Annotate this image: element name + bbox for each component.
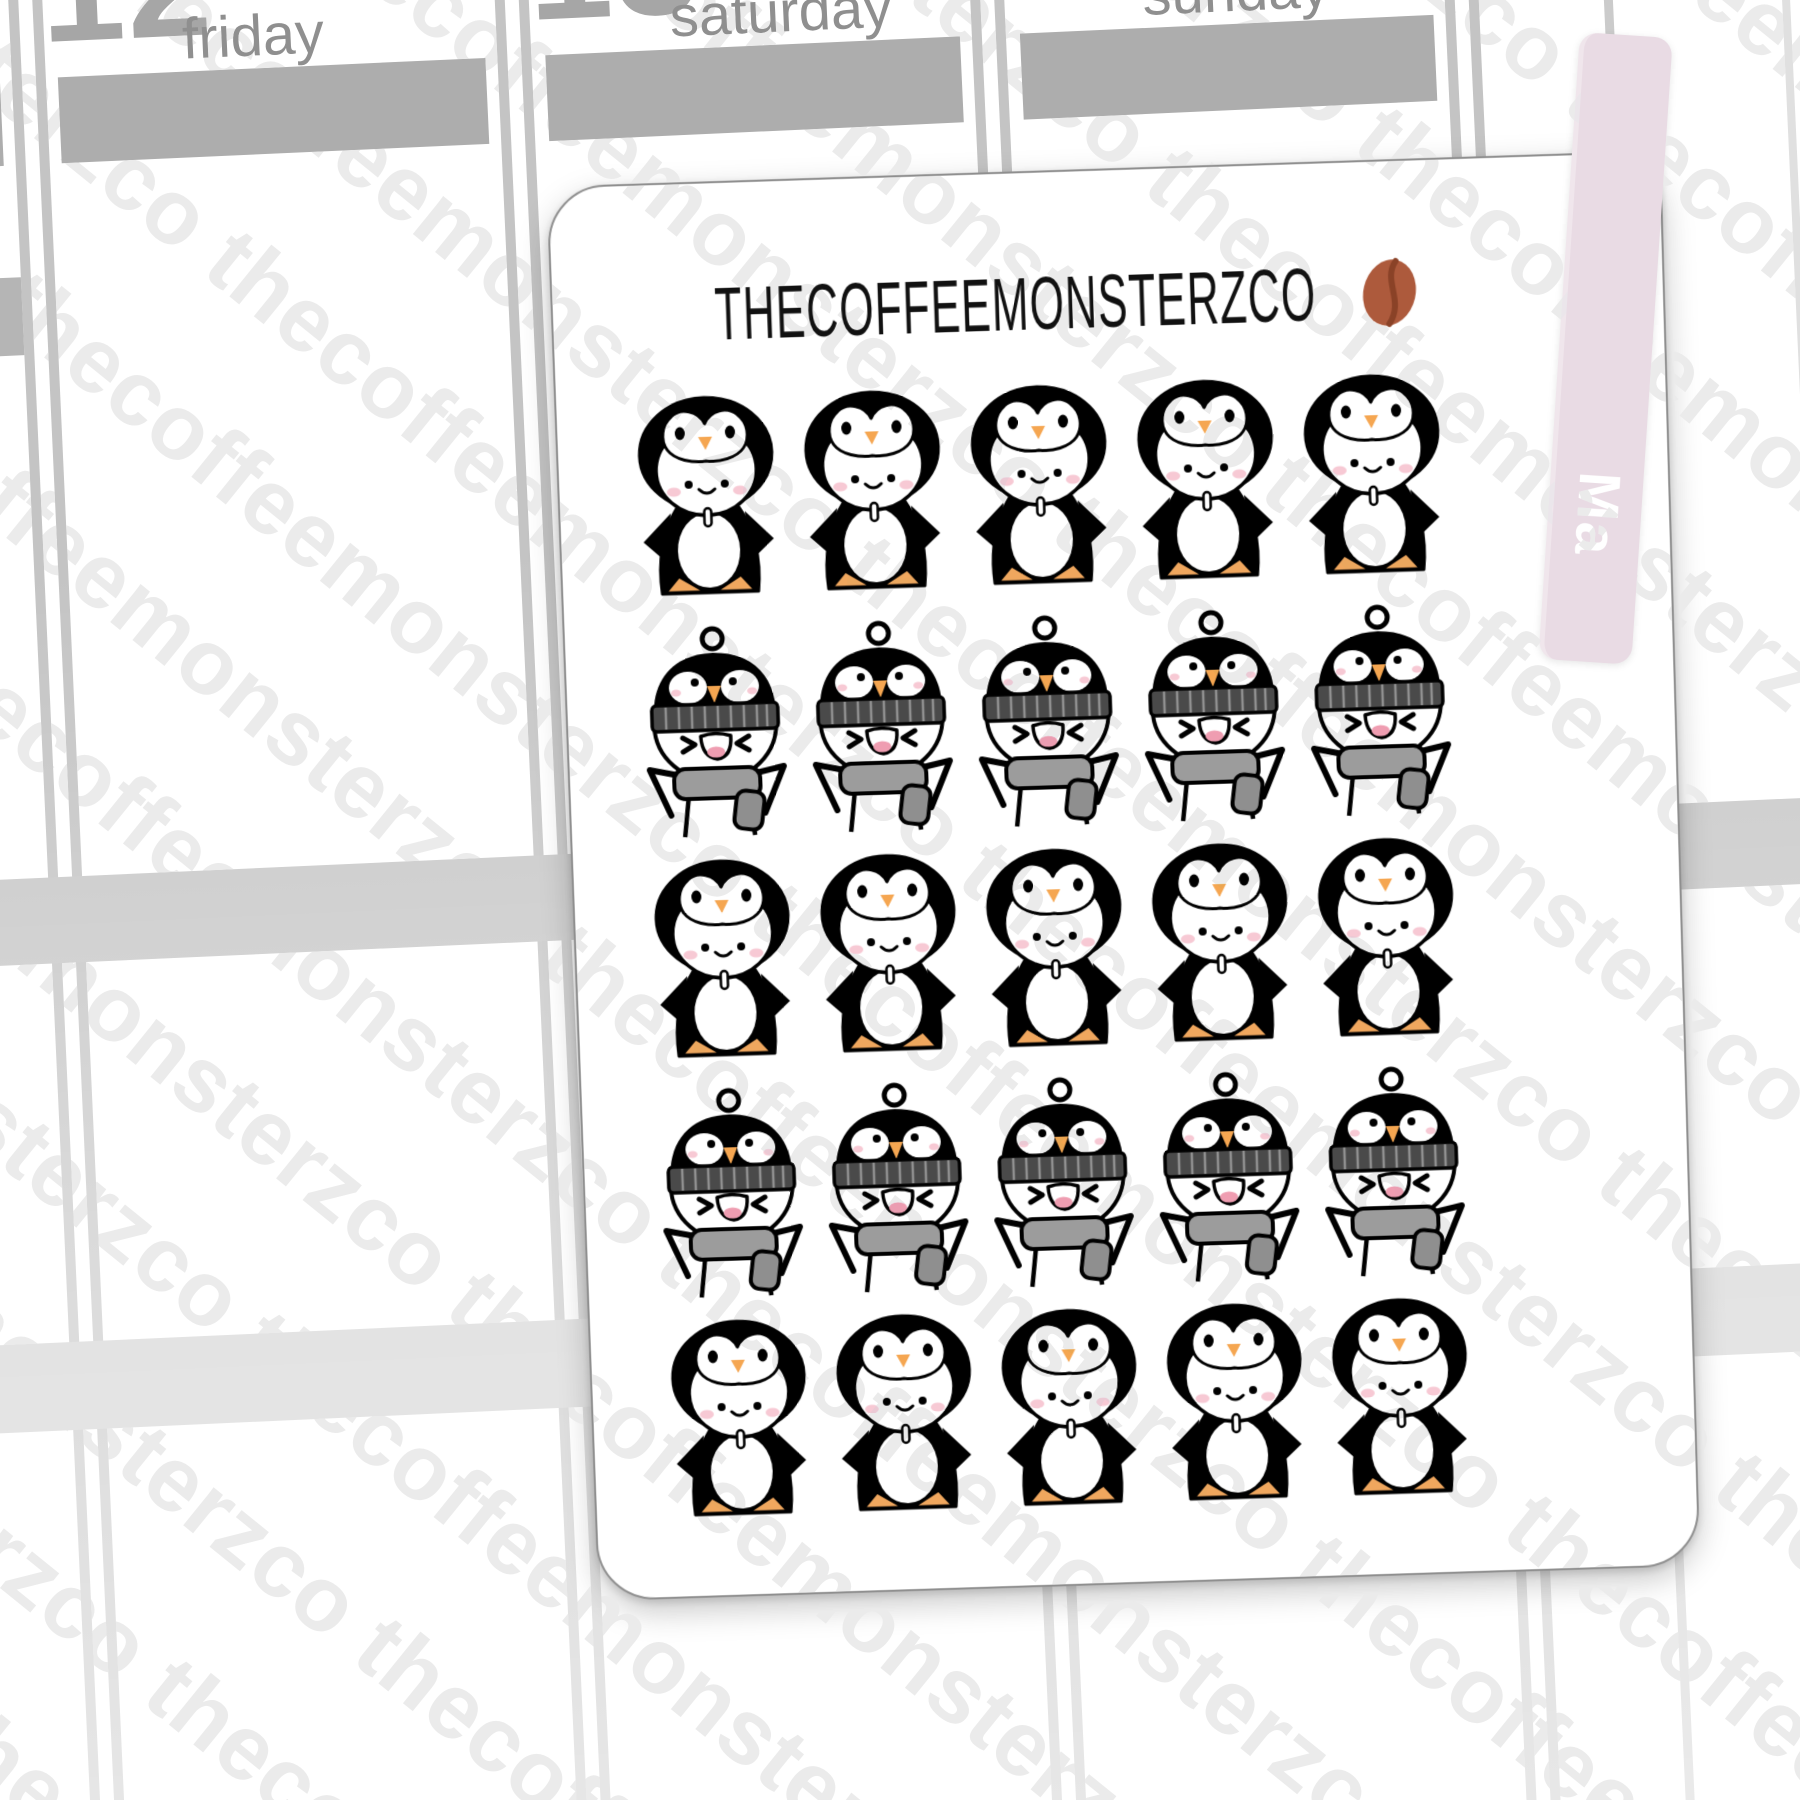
day-header-bar [58, 58, 489, 163]
grid-line [2, 0, 116, 1800]
day-number: 12 [36, 0, 216, 66]
penguin-hood-emoti-art [821, 1307, 990, 1526]
grid-line [26, 0, 140, 1800]
day-header-bar [1020, 15, 1437, 120]
penguin-hood-emoti-art [789, 383, 959, 605]
penguin-beanie-sticker [976, 1064, 1149, 1299]
penguin-hood-sticker [969, 834, 1142, 1070]
penguin-hood-emoti-art [1303, 831, 1471, 1052]
penguin-hood-sticker [1286, 359, 1459, 597]
penguin-beanie-emoti-art [813, 1077, 982, 1297]
penguin-beanie-emoti-art [1129, 604, 1298, 826]
penguin-beanie-sticker [795, 608, 969, 845]
sticker-sheet: THECOFFEEMONSTERZCO [546, 150, 1700, 1601]
penguin-hood-emoti-art [1288, 367, 1457, 590]
penguin-hood-sticker [984, 1294, 1157, 1528]
penguin-hood-sticker [637, 844, 811, 1080]
penguin-hood-emoti-art [971, 841, 1140, 1062]
brand-logo-text: THECOFFEEMONSTERZCO [713, 252, 1317, 357]
day-name: saturday [668, 0, 893, 51]
penguin-beanie-sticker [961, 602, 1135, 839]
penguin-hood-emoti-art [656, 1312, 825, 1531]
penguin-hood-emoti-art [639, 852, 808, 1073]
penguin-hood-emoti-art [1152, 1296, 1320, 1515]
day-header: 12 friday [37, 0, 487, 168]
penguin-beanie-emoti-art [797, 615, 967, 837]
side-cell-shading [0, 277, 24, 360]
month-tab-label: Ma [1561, 470, 1633, 559]
penguin-beanie-sticker [1142, 1059, 1315, 1294]
coffee-bean-icon [1359, 255, 1419, 330]
day-header: 14 sunday [997, 0, 1447, 124]
sheet-content: THECOFFEEMONSTERZCO [607, 158, 1531, 1539]
day-header: 13 saturday [525, 0, 975, 146]
penguin-beanie-sticker [811, 1070, 984, 1305]
penguin-hood-emoti-art [1317, 1291, 1485, 1510]
penguin-hood-emoti-art [805, 847, 974, 1068]
penguin-hood-sticker [653, 1305, 826, 1539]
penguin-beanie-sticker [1308, 1054, 1480, 1289]
penguin-hood-emoti-art [622, 388, 792, 610]
penguin-hood-sticker [1300, 823, 1473, 1059]
penguin-hood-sticker [819, 1299, 992, 1533]
penguin-beanie-emoti-art [647, 1083, 816, 1303]
penguin-beanie-sticker [1127, 597, 1300, 834]
product-photo: 12 friday 13 saturday 14 sunday THECOFFE… [0, 0, 1800, 1800]
penguin-hood-sticker [1315, 1283, 1487, 1517]
penguin-beanie-sticker [645, 1075, 819, 1310]
day-header-bar [545, 36, 963, 141]
penguin-beanie-emoti-art [963, 610, 1132, 832]
penguin-beanie-sticker [628, 613, 802, 850]
penguin-hood-sticker [786, 375, 960, 613]
penguin-beanie-emoti-art [979, 1072, 1148, 1292]
penguin-beanie-sticker [1293, 592, 1466, 829]
penguin-hood-emoti-art [1122, 372, 1291, 594]
penguin-beanie-emoti-art [631, 621, 801, 843]
brand-header: THECOFFEEMONSTERZCO [610, 247, 1496, 360]
penguin-hood-sticker [1120, 365, 1294, 603]
page-edge-line-faint [1772, 0, 1800, 1800]
penguin-beanie-emoti-art [1296, 599, 1465, 821]
day-number: 14 [996, 0, 1176, 22]
penguin-hood-emoti-art [1137, 836, 1306, 1057]
penguin-hood-emoti-art [955, 378, 1125, 600]
day-name: sunday [1141, 0, 1331, 29]
penguin-hood-sticker [1135, 828, 1308, 1064]
day-header-bar [0, 80, 4, 175]
day-number: 13 [524, 0, 704, 44]
penguin-hood-emoti-art [986, 1302, 1154, 1521]
grid-line-pair [2, 0, 140, 1800]
penguin-beanie-emoti-art [1144, 1066, 1312, 1286]
sticker-grid [620, 359, 1487, 1539]
penguin-beanie-emoti-art [1310, 1061, 1478, 1281]
penguin-hood-sticker [803, 839, 977, 1075]
day-name: friday [181, 0, 326, 73]
penguin-hood-sticker [1149, 1289, 1321, 1523]
penguin-hood-sticker [953, 370, 1127, 608]
penguin-hood-sticker [620, 381, 795, 619]
